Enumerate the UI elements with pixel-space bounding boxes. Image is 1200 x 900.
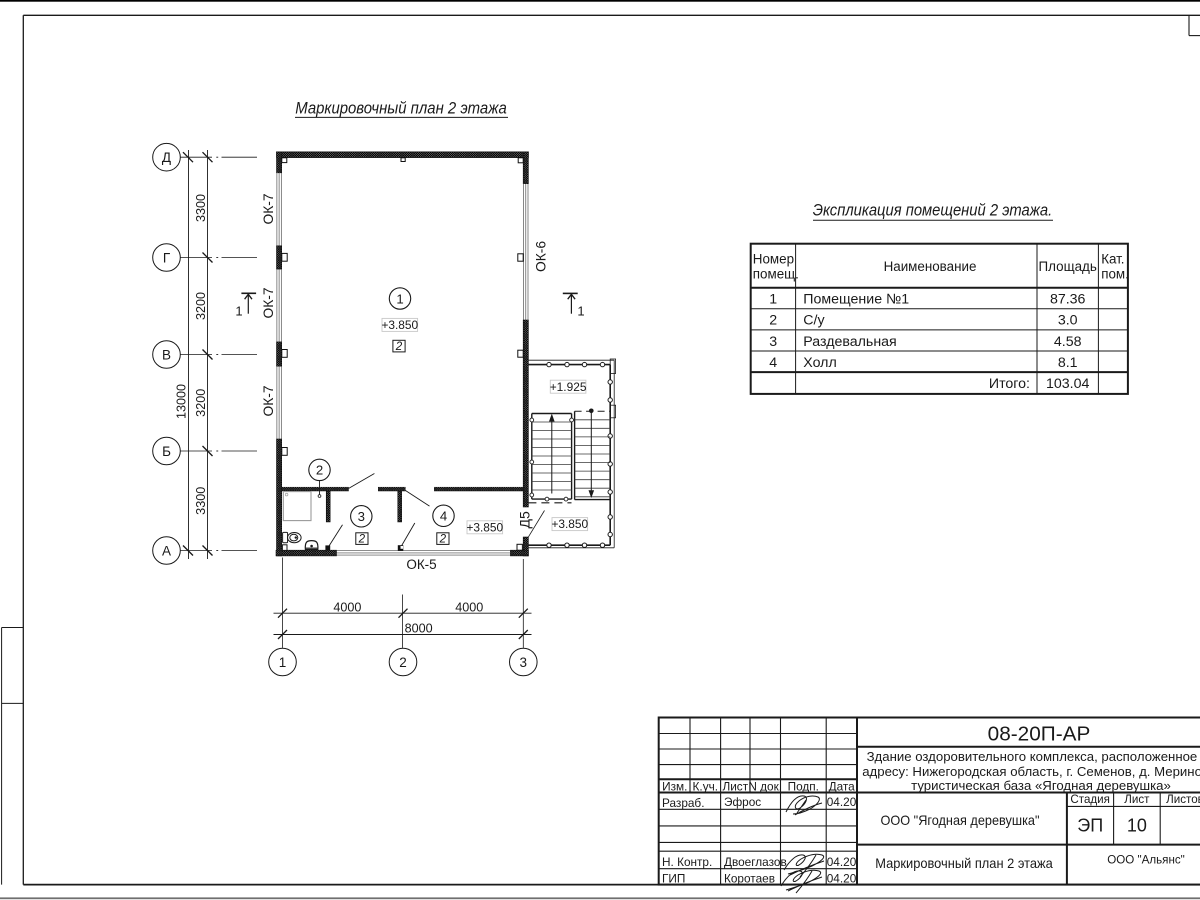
svg-text:С/у: С/у <box>803 313 825 329</box>
svg-text:4000: 4000 <box>455 600 483 614</box>
svg-text:ЭП: ЭП <box>1077 816 1103 836</box>
svg-text:ГИП: ГИП <box>662 872 685 886</box>
svg-text:Разраб.: Разраб. <box>662 796 704 810</box>
svg-text:2: 2 <box>316 463 323 478</box>
svg-text:Д: Д <box>162 150 171 165</box>
svg-text:ОК-5: ОК-5 <box>406 557 436 572</box>
svg-text:3300: 3300 <box>194 487 208 515</box>
svg-text:пом.: пом. <box>1101 267 1129 282</box>
svg-text:103.04: 103.04 <box>1046 376 1090 392</box>
svg-text:ОК-6: ОК-6 <box>534 241 549 272</box>
svg-text:Изм.: Изм. <box>662 779 687 793</box>
svg-text:3: 3 <box>769 334 777 350</box>
svg-text:Холл: Холл <box>803 355 836 371</box>
svg-text:+1.925: +1.925 <box>550 380 587 394</box>
svg-text:08-20П-АР: 08-20П-АР <box>988 724 1091 746</box>
svg-text:Лист: Лист <box>1124 793 1150 806</box>
svg-text:Двоеглазов: Двоеглазов <box>724 855 787 869</box>
svg-text:ОК-7: ОК-7 <box>261 287 276 318</box>
svg-text:Д5: Д5 <box>517 511 533 528</box>
svg-text:2: 2 <box>395 340 403 353</box>
svg-text:4: 4 <box>440 509 447 524</box>
svg-text:1: 1 <box>396 291 403 306</box>
svg-text:Лист: Лист <box>722 779 748 793</box>
svg-text:04.20: 04.20 <box>827 795 857 809</box>
svg-text:3300: 3300 <box>194 194 208 222</box>
svg-text:ООО "Ягодная деревушка": ООО "Ягодная деревушка" <box>881 812 1040 828</box>
svg-text:ОК-7: ОК-7 <box>261 193 276 224</box>
svg-text:Итого:: Итого: <box>989 376 1030 392</box>
svg-text:Кат.: Кат. <box>1101 252 1124 267</box>
svg-text:1: 1 <box>279 655 287 670</box>
svg-text:2: 2 <box>769 313 777 329</box>
svg-text:Экспликация помещений 2 этажа.: Экспликация помещений 2 этажа. <box>813 202 1053 220</box>
svg-text:Б: Б <box>162 444 171 459</box>
svg-text:К.уч.: К.уч. <box>693 779 718 793</box>
svg-text:Наименование: Наименование <box>884 259 977 274</box>
svg-text:+3.850: +3.850 <box>551 517 588 531</box>
svg-text:04.20: 04.20 <box>827 872 857 886</box>
svg-text:8000: 8000 <box>405 621 433 635</box>
svg-text:4.58: 4.58 <box>1054 334 1082 350</box>
svg-text:1: 1 <box>769 292 777 308</box>
svg-text:04.20: 04.20 <box>827 855 857 869</box>
svg-text:Раздевальная: Раздевальная <box>803 334 896 350</box>
svg-text:Помещение №1: Помещение №1 <box>803 292 909 308</box>
svg-text:10: 10 <box>1127 816 1147 836</box>
svg-text:Подп.: Подп. <box>788 779 819 793</box>
svg-text:2: 2 <box>358 533 366 546</box>
svg-text:Здание оздоровительного компле: Здание оздоровительного комплекса, распо… <box>867 749 1200 764</box>
svg-text:помещ.: помещ. <box>753 267 799 282</box>
svg-text:Эфрос: Эфрос <box>724 795 761 809</box>
svg-text:Маркировочный план 2 этажа: Маркировочный план 2 этажа <box>295 100 507 118</box>
svg-text:Номер: Номер <box>753 252 794 267</box>
svg-text:3200: 3200 <box>194 389 208 417</box>
svg-text:А: А <box>162 543 171 558</box>
svg-text:1: 1 <box>235 304 242 319</box>
svg-text:3.0: 3.0 <box>1058 313 1078 329</box>
svg-text:Маркировочный план 2 этажа: Маркировочный план 2 этажа <box>875 855 1053 871</box>
svg-text:N док.: N док. <box>748 779 782 793</box>
svg-text:2: 2 <box>399 655 407 670</box>
svg-text:Листов: Листов <box>1166 793 1200 806</box>
svg-text:+3.850: +3.850 <box>466 520 503 534</box>
svg-text:туристическая база «Ягодная де: туристическая база «Ягодная деревушка» <box>911 778 1171 793</box>
svg-text:13000: 13000 <box>175 384 189 419</box>
svg-text:3: 3 <box>520 655 528 670</box>
svg-text:Площадь: Площадь <box>1039 259 1097 274</box>
svg-text:Н. Контр.: Н. Контр. <box>662 855 712 869</box>
svg-text:+3.850: +3.850 <box>381 318 418 332</box>
svg-text:3200: 3200 <box>194 292 208 320</box>
svg-text:В: В <box>162 347 171 362</box>
svg-text:87.36: 87.36 <box>1050 292 1086 308</box>
svg-text:8.1: 8.1 <box>1058 355 1078 371</box>
svg-text:ООО "Альянс": ООО "Альянс" <box>1107 854 1185 867</box>
svg-text:1: 1 <box>577 304 584 319</box>
svg-text:4000: 4000 <box>333 600 361 614</box>
svg-text:Дата: Дата <box>829 779 856 793</box>
svg-text:Г: Г <box>163 250 171 265</box>
svg-text:Коротаев: Коротаев <box>724 872 775 886</box>
svg-text:3: 3 <box>358 509 365 524</box>
svg-text:Стадия: Стадия <box>1070 793 1110 806</box>
svg-text:4: 4 <box>769 355 777 371</box>
svg-text:ОК-7: ОК-7 <box>261 385 276 416</box>
svg-text:2: 2 <box>439 533 447 546</box>
